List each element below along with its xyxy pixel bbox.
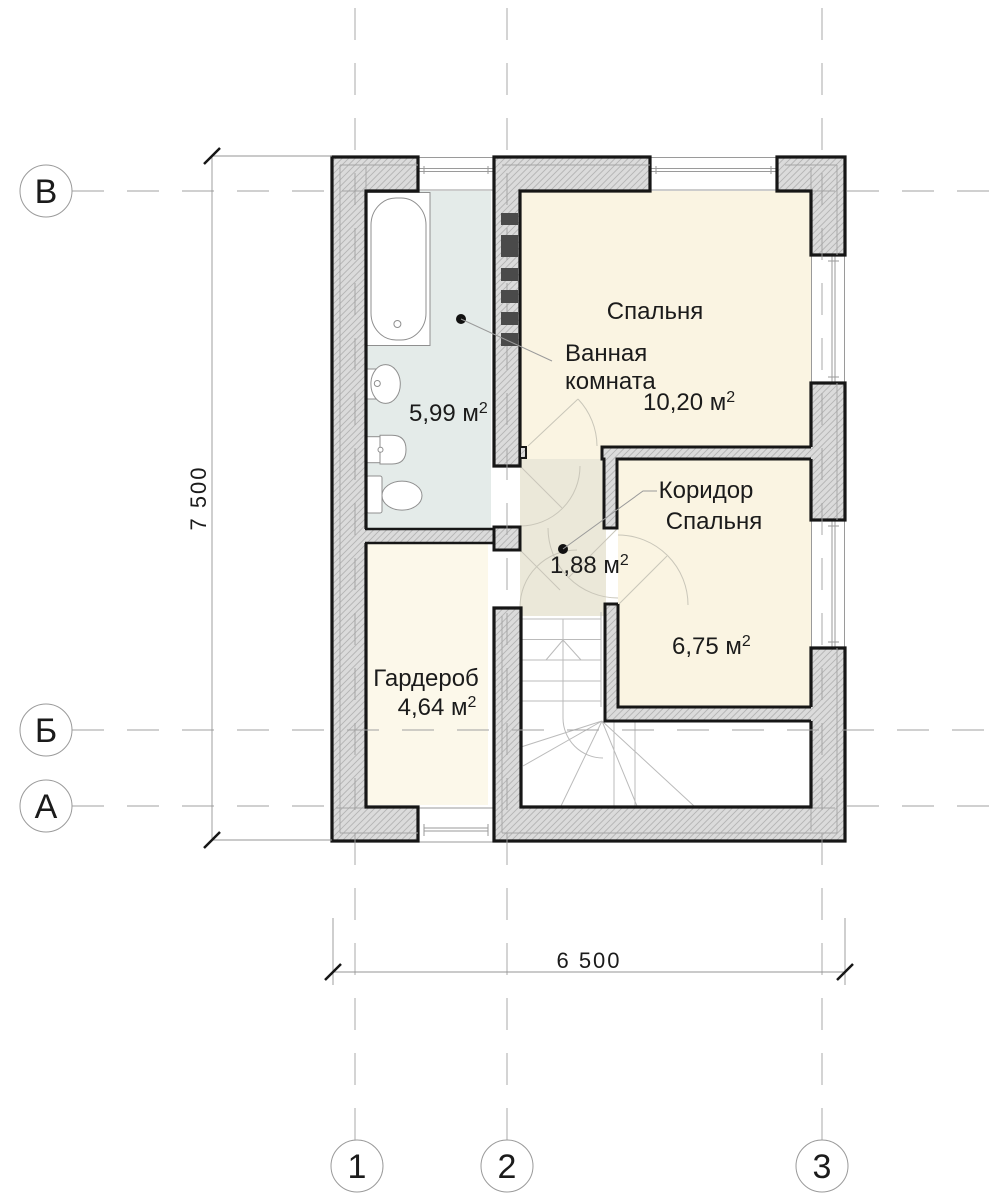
svg-text:Гардероб: Гардероб (373, 665, 479, 692)
svg-text:1,88 м2: 1,88 м2 (550, 552, 629, 579)
svg-text:Спальня: Спальня (607, 298, 703, 325)
svg-text:5,99 м2: 5,99 м2 (409, 400, 488, 427)
svg-text:Б: Б (35, 712, 57, 750)
svg-text:1: 1 (348, 1148, 367, 1186)
svg-text:6,75 м2: 6,75 м2 (672, 633, 751, 660)
svg-text:10,20 м2: 10,20 м2 (643, 389, 735, 416)
svg-text:6 500: 6 500 (556, 948, 621, 973)
svg-text:7 500: 7 500 (186, 465, 211, 530)
svg-text:4,64 м2: 4,64 м2 (398, 694, 477, 721)
svg-text:В: В (35, 173, 58, 211)
svg-text:Коридор: Коридор (659, 477, 754, 504)
svg-text:Ванная: Ванная (565, 340, 647, 367)
svg-text:А: А (35, 788, 58, 826)
svg-text:3: 3 (813, 1148, 832, 1186)
svg-text:2: 2 (498, 1148, 517, 1186)
svg-text:Спальня: Спальня (666, 508, 762, 535)
